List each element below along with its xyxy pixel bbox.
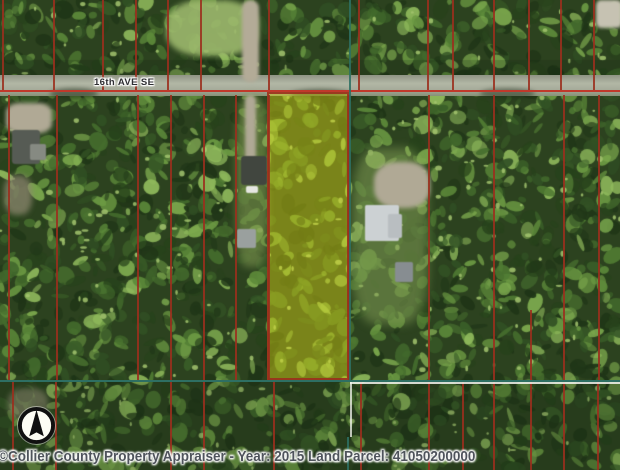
driveway-mid [245, 95, 256, 163]
section-line-white-vertical [350, 382, 352, 437]
parcel-line [428, 95, 430, 381]
parcel-line [268, 0, 270, 90]
road-label: 16th AVE SE [94, 77, 154, 88]
driveway-east [374, 162, 430, 208]
parcel-line [53, 0, 55, 90]
parcel-line [200, 0, 202, 90]
section-line-white [350, 382, 620, 384]
dirt-path-top [242, 0, 259, 82]
parcel-line [203, 95, 205, 381]
parcel-line [8, 95, 10, 381]
parcel-line [167, 0, 169, 90]
caption-bar: ©Collier County Property Appraiser - Yea… [0, 448, 475, 465]
parcel-line [137, 95, 139, 381]
parcel-line [530, 310, 532, 381]
parcel-line [358, 0, 360, 90]
parcel-line [493, 0, 495, 90]
clearing-top-right [596, 0, 620, 28]
north-arrow-icon [17, 406, 56, 450]
parcel-line [593, 0, 595, 90]
parcel-line [493, 95, 495, 381]
parcel-line [560, 0, 562, 90]
parcel-line [2, 0, 4, 90]
parcel-line [170, 95, 172, 381]
road-parcel-line [0, 90, 620, 92]
parcel-line [268, 95, 270, 381]
parcel-line [528, 0, 530, 90]
shed-mid [237, 229, 256, 248]
house-east-wing [388, 214, 402, 238]
house-west-small [30, 144, 46, 160]
house-mid [241, 156, 267, 185]
highlighted-parcel [267, 92, 349, 380]
parcel-line [563, 381, 565, 470]
parcel-line [563, 95, 565, 381]
parcel-line [598, 95, 600, 381]
parcel-line [427, 0, 429, 90]
parcel-line [56, 95, 58, 381]
section-line-vertical [349, 0, 351, 381]
driveway-west [6, 103, 52, 133]
parcel-line [493, 381, 495, 470]
parcel-map[interactable]: 16th AVE SE ©Collier County Property App… [0, 0, 620, 470]
parcel-line [235, 95, 237, 381]
parcel-line [530, 381, 532, 470]
vehicle-mid [246, 186, 258, 193]
parcel-line [597, 381, 599, 470]
shed-east [395, 262, 413, 282]
parcel-line [452, 0, 454, 90]
